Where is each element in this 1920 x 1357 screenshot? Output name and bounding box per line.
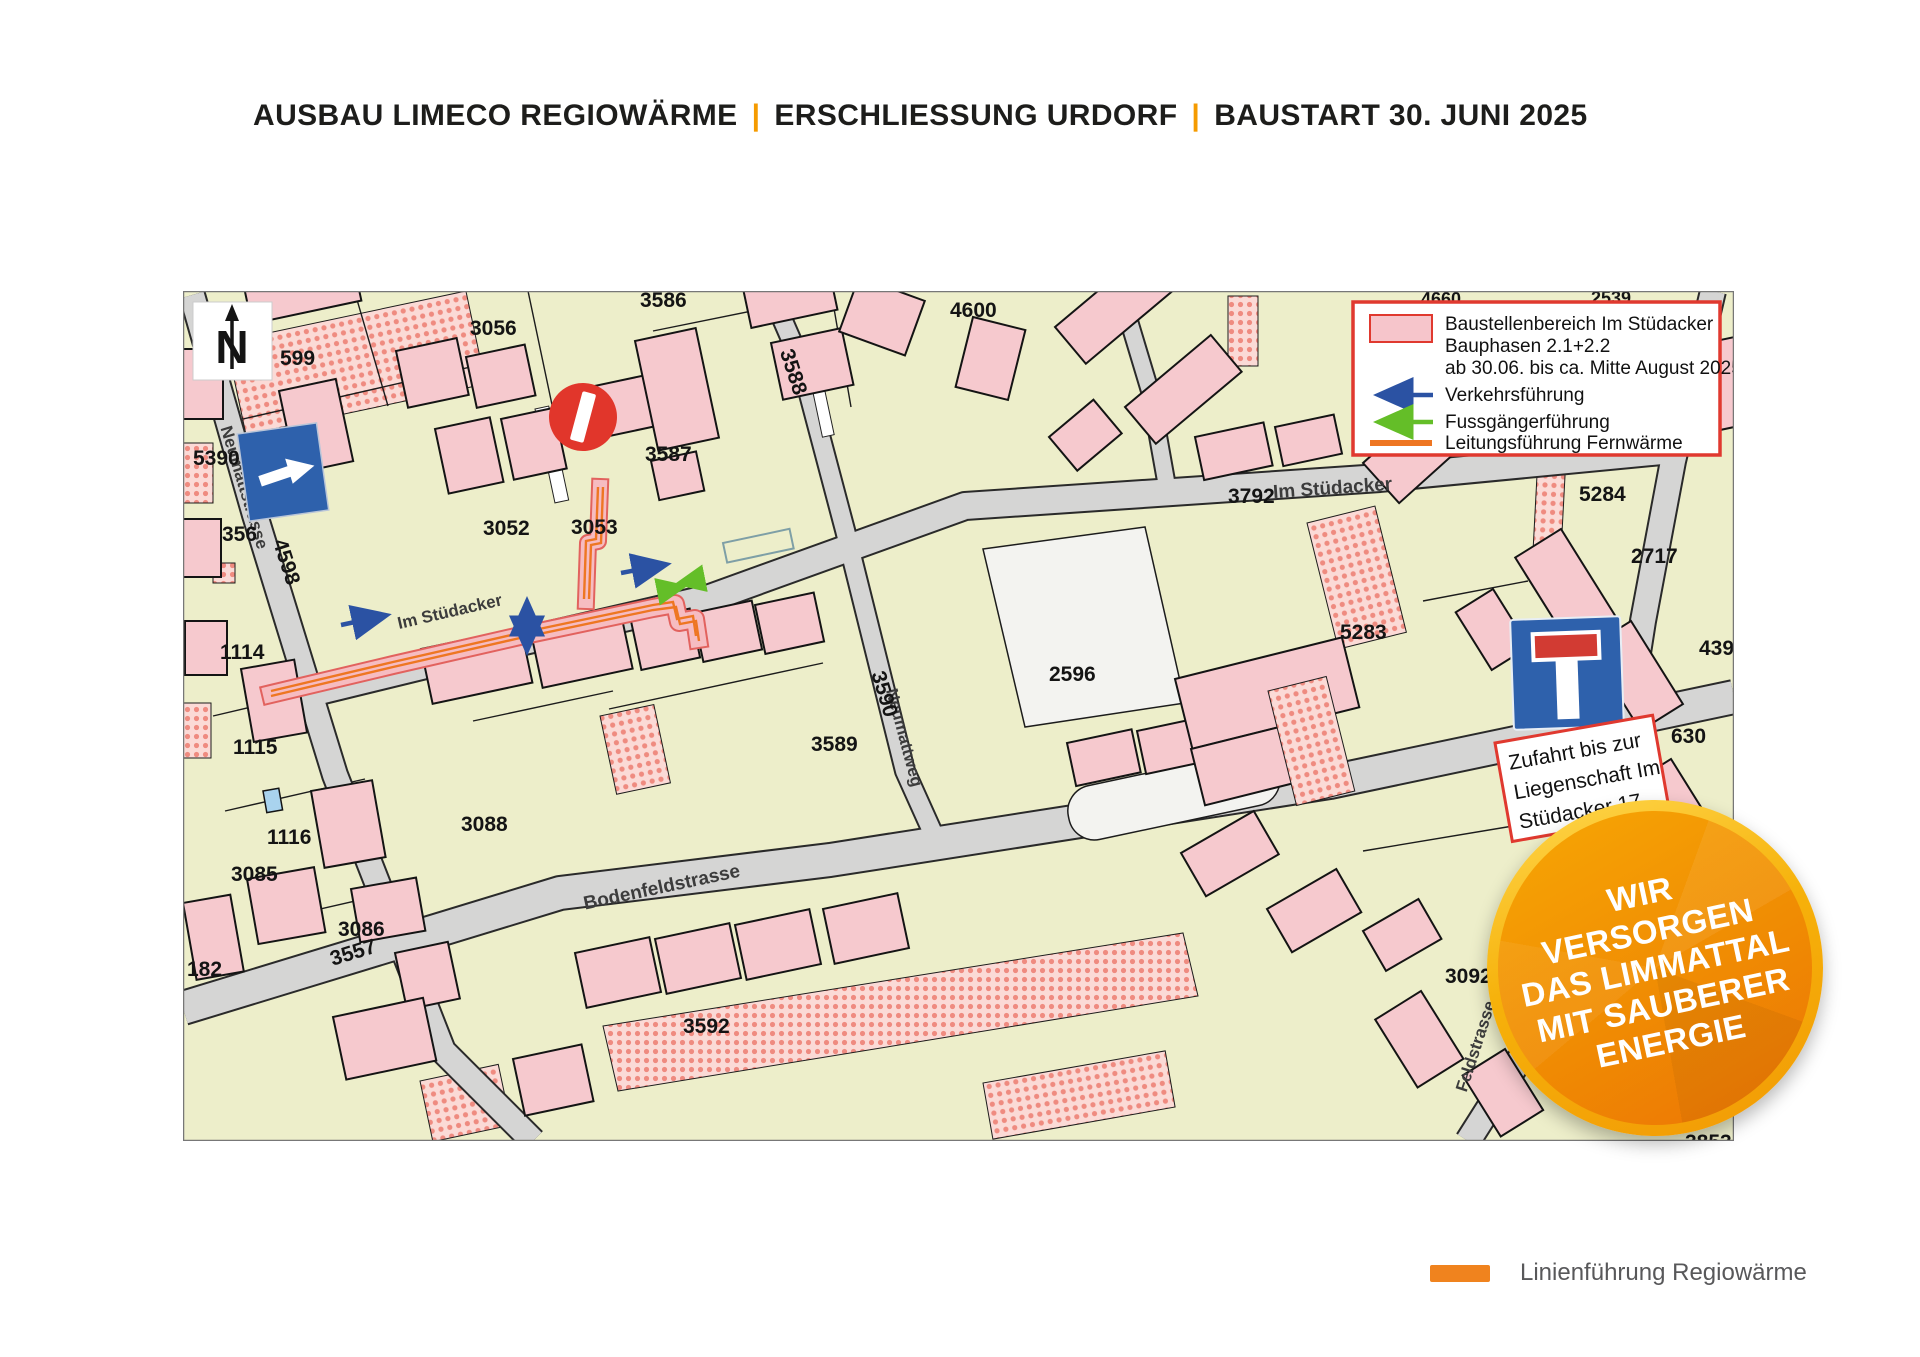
legend-construction-line: ab 30.06. bis ca. Mitte August 2025	[1445, 358, 1734, 379]
legend-construction-line: Bauphasen 2.1+2.2	[1445, 336, 1610, 357]
north-arrow: N	[193, 302, 272, 380]
parcel-number: 630	[1671, 725, 1706, 748]
parcel-number: 4600	[950, 299, 997, 322]
parcel-number: 3592	[683, 1015, 730, 1038]
parcel-number: 4392	[1699, 637, 1734, 660]
parcel-number: 3053	[571, 516, 618, 539]
parcel-number: 356	[222, 523, 257, 546]
brand-badge-inner: WIR VERSORGEN DAS LIMMATTAL MIT SAUBERER…	[1498, 811, 1812, 1125]
parcel-number: 599	[280, 347, 315, 370]
poster-page: AUSBAU LIMECO REGIOWÄRME|ERSCHLIESSUNG U…	[0, 0, 1920, 1357]
north-letter: N	[215, 321, 248, 373]
title-segment-1: AUSBAU LIMECO REGIOWÄRME	[253, 99, 738, 132]
one-way-sign	[237, 423, 328, 521]
parcel-number: 5283	[1340, 621, 1387, 644]
parcel-number: 3587	[645, 443, 692, 466]
parcel-number: 3589	[811, 733, 858, 756]
legend-pipe-label: Leitungsführung Fernwärme	[1445, 433, 1683, 454]
parcel-number: 3853	[1685, 1131, 1732, 1141]
footer-legend-label: Linienführung Regiowärme	[1520, 1259, 1807, 1287]
parcel-number: 5284	[1579, 483, 1626, 506]
parcel-number: 182	[187, 958, 222, 981]
title-separator: |	[1177, 99, 1214, 132]
parcel-number: 5390	[193, 447, 240, 470]
dead-end-sign	[1510, 616, 1624, 730]
parcel-number: 2596	[1049, 663, 1096, 686]
parcel-number: 3085	[231, 863, 278, 886]
parcel-number: 3792	[1228, 485, 1275, 508]
regiowaerme-line-swatch-icon	[1430, 1265, 1490, 1282]
pool	[263, 788, 283, 812]
parcel-number: 3052	[483, 517, 530, 540]
parcel-number: 3056	[470, 317, 517, 340]
parcel-number: 3088	[461, 813, 508, 836]
parcel-number: 3586	[640, 291, 687, 312]
legend-traffic-label: Verkehrsführung	[1445, 385, 1584, 406]
dead-end-stem-icon	[1555, 657, 1579, 720]
legend-pedestrian-label: Fussgängerführung	[1445, 412, 1610, 433]
brand-badge: WIR VERSORGEN DAS LIMMATTAL MIT SAUBERER…	[1487, 800, 1823, 1136]
parcel-number: 1115	[233, 736, 278, 759]
parcel-number: 1114	[220, 641, 265, 664]
map-legend: Baustellenbereich Im Stüdacker Bauphasen…	[1353, 302, 1734, 455]
legend-construction-line: Baustellenbereich Im Stüdacker	[1445, 314, 1714, 335]
footer-legend: Linienführung Regiowärme	[1430, 1259, 1807, 1287]
title-separator: |	[738, 99, 775, 132]
title-segment-2: ERSCHLIESSUNG URDORF	[774, 99, 1177, 132]
legend-construction-swatch	[1370, 315, 1432, 342]
parcel-number: 2717	[1631, 545, 1678, 568]
parcel-number: 3092	[1445, 965, 1492, 988]
page-title: AUSBAU LIMECO REGIOWÄRME|ERSCHLIESSUNG U…	[253, 99, 1588, 133]
parcel-number: 1116	[267, 826, 311, 849]
title-segment-3: BAUSTART 30. JUNI 2025	[1214, 99, 1587, 132]
dead-end-bar-icon	[1533, 632, 1600, 660]
